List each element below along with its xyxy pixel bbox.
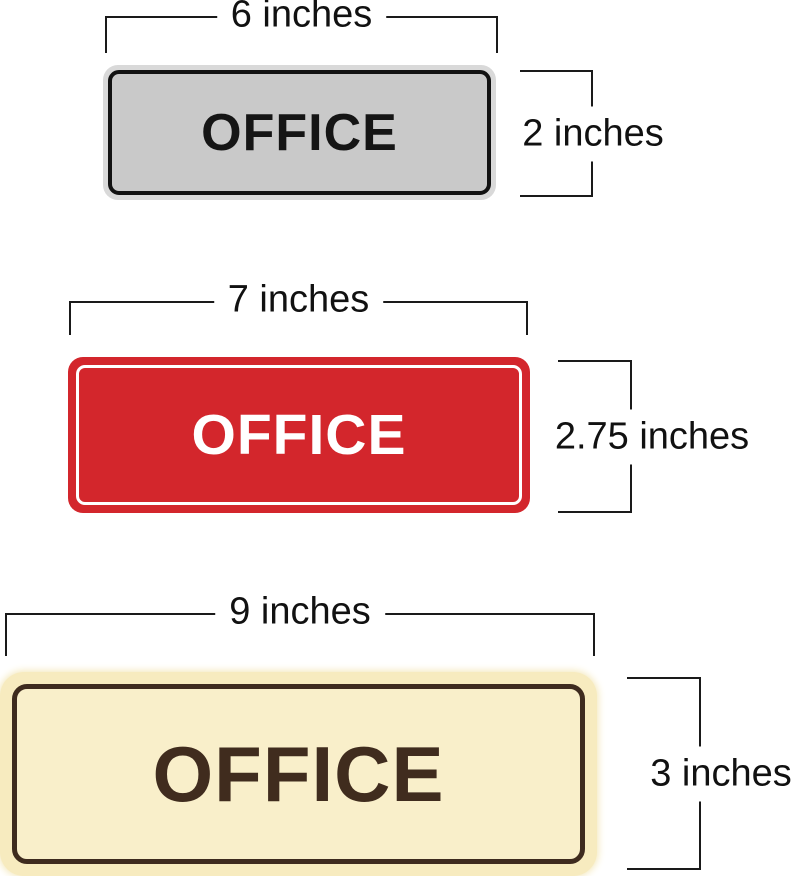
width-dimension-bracket-7in: 7 inches	[69, 301, 528, 335]
width-dimension-bracket-9in: 9 inches	[5, 613, 595, 656]
height-dimension-label: 2.75 inches	[547, 409, 757, 464]
sign-face: OFFICE	[12, 684, 585, 864]
office-sign-red: OFFICE	[68, 357, 530, 513]
height-dimension-bracket-2-75in: 2.75 inches	[558, 360, 632, 513]
sign-label: OFFICE	[153, 729, 445, 820]
sign-label: OFFICE	[201, 103, 398, 163]
height-dimension-bracket-3in: 3 inches	[627, 677, 701, 870]
office-sign-cream: OFFICE	[0, 672, 597, 876]
width-dimension-label: 7 inches	[214, 280, 384, 321]
height-dimension-label: 3 inches	[642, 746, 795, 801]
sign-label: OFFICE	[192, 402, 407, 468]
sign-face: OFFICE	[108, 70, 491, 195]
product-dimension-diagram: 6 inches OFFICE 2 inches 7 inches OFFICE…	[0, 0, 795, 876]
height-dimension-label: 2 inches	[514, 106, 672, 161]
width-dimension-label: 6 inches	[217, 0, 387, 36]
width-dimension-bracket-6in: 6 inches	[105, 16, 498, 53]
office-sign-gray: OFFICE	[103, 65, 496, 200]
width-dimension-label: 9 inches	[215, 592, 385, 633]
sign-face: OFFICE	[76, 365, 522, 505]
height-dimension-bracket-2in: 2 inches	[520, 70, 593, 197]
